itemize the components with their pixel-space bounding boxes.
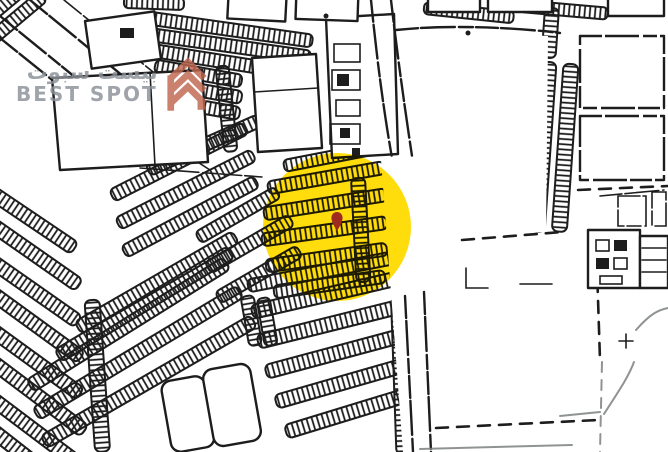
plot-row xyxy=(552,63,579,232)
listing-map-image[interactable]: بيست سبوت BEST SPOT xyxy=(0,0,668,452)
plot-row xyxy=(75,231,240,334)
plot-map xyxy=(0,0,668,452)
plot-row xyxy=(124,0,184,10)
